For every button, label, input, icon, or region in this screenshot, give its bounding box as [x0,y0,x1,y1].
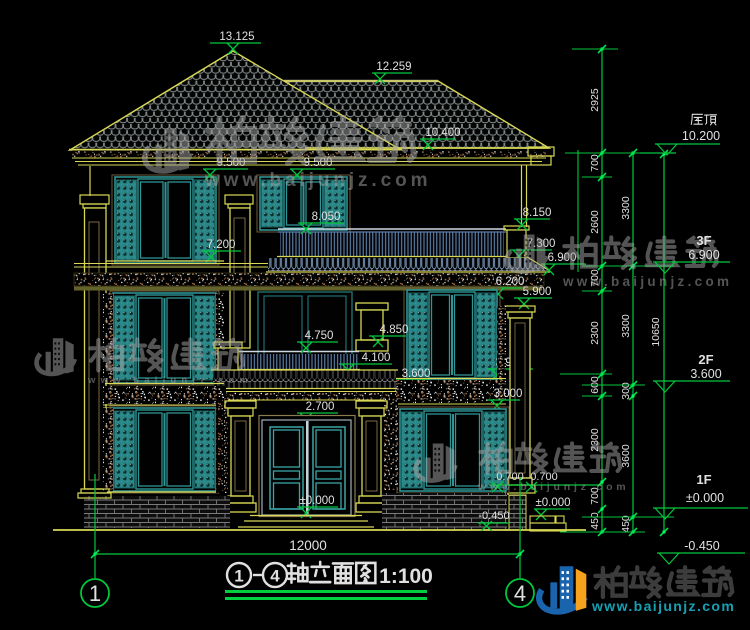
svg-text:3F: 3F [696,233,711,248]
svg-text:12000: 12000 [289,538,327,553]
svg-text:10650: 10650 [650,317,662,346]
svg-text:4.750: 4.750 [305,330,334,342]
svg-text:4: 4 [514,581,526,606]
svg-text:3300: 3300 [620,196,632,220]
svg-text:www.baijunjz.com: www.baijunjz.com [204,170,431,191]
svg-text:±0.000: ±0.000 [535,497,570,509]
svg-text:4.100: 4.100 [362,352,391,364]
svg-text:2.700: 2.700 [306,401,335,413]
svg-text:±0.000: ±0.000 [686,491,724,505]
svg-text:-0.450: -0.450 [684,539,719,553]
svg-text:10.400: 10.400 [425,127,460,139]
svg-text:±0.000: ±0.000 [299,495,334,507]
svg-text:-0.450: -0.450 [478,510,509,522]
svg-text:2F: 2F [698,352,713,367]
svg-text:3300: 3300 [620,314,632,338]
svg-text:6.900: 6.900 [688,248,719,262]
svg-text:www.baijunjz.com: www.baijunjz.com [477,481,629,493]
svg-text:1: 1 [234,567,243,586]
svg-text:1: 1 [89,581,101,606]
svg-text:4: 4 [270,567,280,586]
svg-text:3600: 3600 [620,444,632,468]
svg-text:450: 450 [589,512,601,530]
svg-text:8.050: 8.050 [312,211,341,223]
svg-text:2300: 2300 [589,321,601,345]
svg-text:www.baijunjz.com: www.baijunjz.com [562,274,732,289]
svg-text:5.900: 5.900 [523,286,552,298]
svg-text:8.150: 8.150 [523,207,552,219]
svg-text:700: 700 [589,154,601,172]
svg-text:2600: 2600 [589,210,601,234]
svg-text:3.600: 3.600 [690,367,721,381]
svg-text:4.850: 4.850 [380,324,409,336]
svg-text:12.259: 12.259 [376,61,411,73]
svg-text:1F: 1F [696,472,711,487]
svg-text:13.125: 13.125 [219,31,254,43]
svg-text:7.200: 7.200 [207,239,236,251]
svg-text:3.000: 3.000 [494,388,523,400]
svg-text:www.baijunjz.com: www.baijunjz.com [591,598,735,614]
svg-text:10.200: 10.200 [682,129,720,143]
svg-text:1:100: 1:100 [379,565,433,588]
svg-text:6.200: 6.200 [496,276,525,288]
svg-text:2925: 2925 [589,88,601,112]
svg-text:www.baijunjz.com: www.baijunjz.com [87,375,253,386]
svg-text:450: 450 [620,515,632,533]
